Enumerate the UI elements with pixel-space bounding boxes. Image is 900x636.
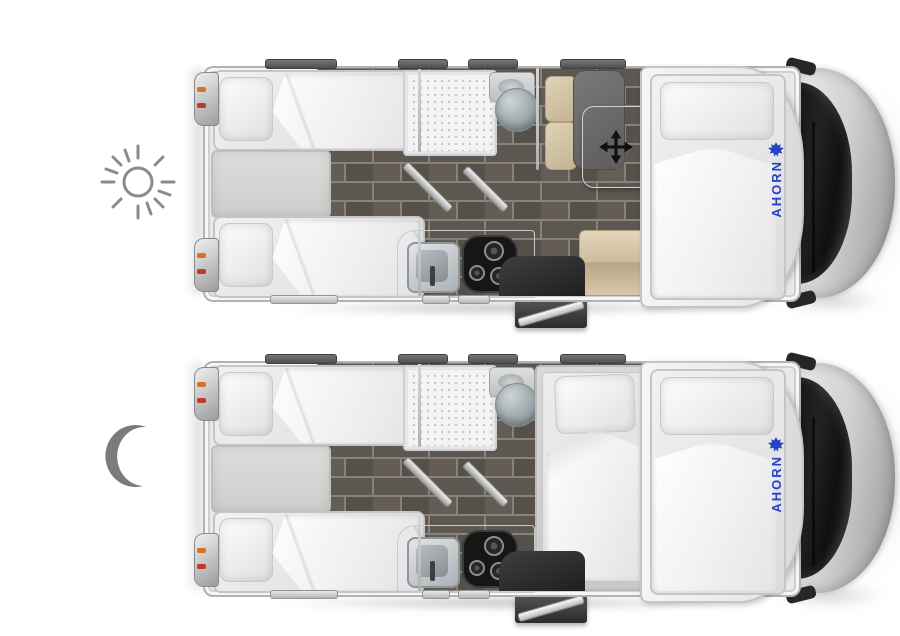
- rear-corner-bumper: [194, 238, 219, 292]
- pillow: [660, 82, 774, 140]
- taillight-orange: [197, 87, 206, 92]
- roof-window: [265, 59, 337, 69]
- side-trim: [270, 295, 338, 304]
- wardrobe-cabinet: [211, 445, 331, 513]
- duvet: [263, 368, 421, 443]
- wardrobe-cabinet: [211, 150, 331, 218]
- side-trim: [458, 590, 490, 599]
- wiper: [812, 417, 815, 567]
- rear-corner-bumper: [194, 367, 219, 421]
- duvet: [263, 73, 421, 148]
- entry-step: [515, 299, 587, 328]
- roof-window: [398, 354, 448, 364]
- floorplan-day: AHORN: [200, 60, 900, 326]
- partition-wall: [418, 220, 421, 296]
- taillight-red: [197, 269, 206, 274]
- brand-wordmark: AHORN: [769, 160, 784, 218]
- rear-corner-bumper: [194, 533, 219, 587]
- roof-window: [560, 354, 626, 364]
- move-arrows-icon: [599, 130, 633, 164]
- entry-seat: [499, 551, 585, 591]
- rear-corner-bumper: [194, 72, 219, 126]
- brand-logo: AHORN: [758, 142, 794, 292]
- brand-wordmark: AHORN: [769, 455, 784, 513]
- partition-wall: [418, 68, 421, 152]
- pillow: [219, 518, 273, 582]
- maple-leaf-icon: [768, 437, 784, 452]
- partition-wall: [536, 68, 539, 170]
- brand-logo: AHORN: [758, 437, 794, 587]
- toilet: [495, 383, 539, 427]
- floorplan-night: AHORN: [200, 355, 900, 621]
- overcab-bed-area: AHORN: [640, 361, 804, 603]
- partition-wall: [418, 363, 421, 447]
- pillow: [219, 77, 273, 141]
- side-trim: [422, 590, 450, 599]
- kitchen-sink: [407, 537, 460, 588]
- pillow: [219, 223, 273, 287]
- roof-window: [468, 59, 518, 69]
- roof-window: [398, 59, 448, 69]
- entry-step: [515, 594, 587, 623]
- side-trim: [458, 295, 490, 304]
- toilet: [495, 88, 539, 132]
- kitchen-sink: [407, 242, 460, 293]
- step-rail: [517, 300, 585, 327]
- moon-icon: [104, 424, 164, 490]
- dinette-side-bench: [579, 230, 649, 296]
- single-bed-rear-left: [213, 365, 425, 446]
- side-trim: [422, 295, 450, 304]
- taillight-orange: [197, 382, 206, 387]
- step-rail: [517, 595, 585, 622]
- overcab-bed-area: AHORN: [640, 66, 804, 308]
- side-trim: [270, 590, 338, 599]
- pillow: [219, 372, 273, 436]
- entry-seat: [499, 256, 585, 296]
- single-bed-rear-right: [213, 216, 425, 298]
- pillow: [660, 377, 774, 435]
- single-bed-rear-right: [213, 511, 425, 593]
- single-bed-rear-left: [213, 70, 425, 151]
- taillight-red: [197, 564, 206, 569]
- roof-window: [468, 354, 518, 364]
- roof-window: [560, 59, 626, 69]
- partition-wall: [418, 515, 421, 591]
- taillight-red: [197, 103, 206, 108]
- sun-icon: [98, 142, 178, 222]
- taillight-orange: [197, 253, 206, 258]
- taillight-red: [197, 398, 206, 403]
- maple-leaf-icon: [768, 142, 784, 157]
- roof-window: [265, 354, 337, 364]
- taillight-orange: [197, 548, 206, 553]
- pillow: [554, 374, 636, 435]
- wiper: [812, 122, 815, 272]
